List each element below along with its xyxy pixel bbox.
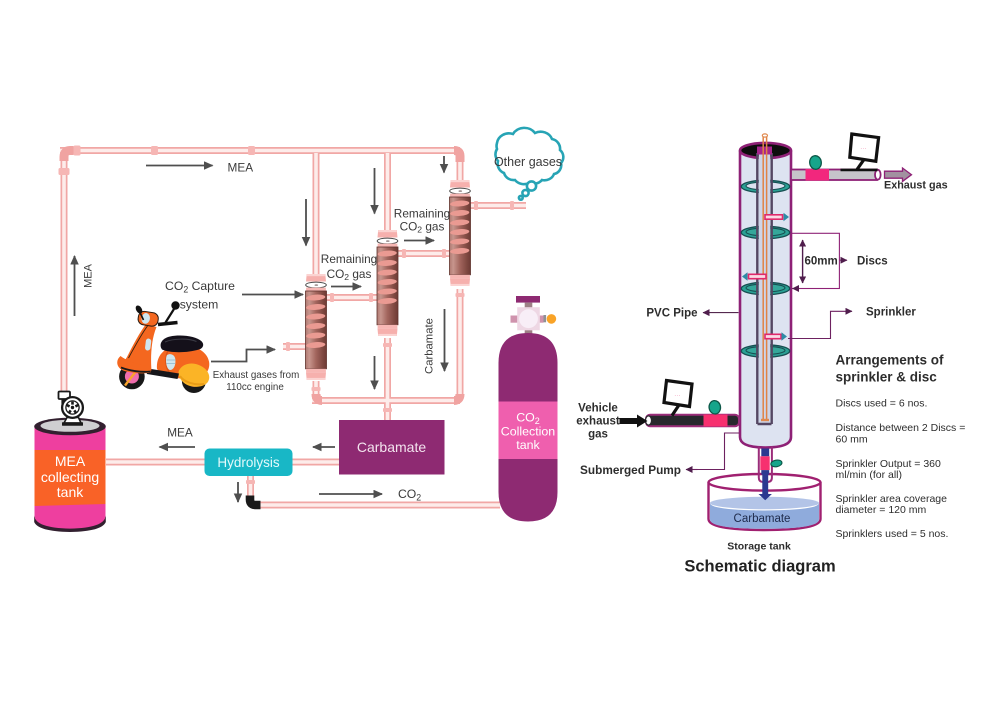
svg-text:Vehicle: Vehicle xyxy=(578,403,618,415)
svg-text:PVC Pipe: PVC Pipe xyxy=(646,308,697,320)
svg-text:MEA: MEA xyxy=(82,263,94,288)
svg-text:60mm: 60mm xyxy=(805,256,838,268)
svg-text:MEA: MEA xyxy=(55,453,86,469)
svg-text:Arrangements of: Arrangements of xyxy=(836,353,945,368)
svg-text:- - -: - - - xyxy=(861,147,867,151)
svg-text:Remaining: Remaining xyxy=(394,207,450,221)
svg-text:sprinkler & disc: sprinkler & disc xyxy=(836,370,938,385)
svg-text:CO2 gas: CO2 gas xyxy=(400,220,445,235)
svg-text:MEA: MEA xyxy=(167,426,193,440)
svg-text:tank: tank xyxy=(516,438,540,452)
svg-text:Collection: Collection xyxy=(501,425,556,439)
svg-text:gas: gas xyxy=(588,429,608,441)
svg-text:Storage tank: Storage tank xyxy=(727,541,791,553)
svg-text:Carbamate: Carbamate xyxy=(424,318,436,374)
svg-text:Sprinkler: Sprinkler xyxy=(866,306,916,318)
svg-text:tank: tank xyxy=(57,484,84,500)
svg-text:Carbamate: Carbamate xyxy=(734,513,791,525)
svg-text:Exhaust gas: Exhaust gas xyxy=(884,180,948,192)
svg-text:Submerged Pump: Submerged Pump xyxy=(580,463,681,477)
svg-text:60 mm: 60 mm xyxy=(836,434,868,446)
svg-text:CO2 gas: CO2 gas xyxy=(327,267,372,282)
svg-text:Carbamate: Carbamate xyxy=(357,439,426,455)
svg-text:ml/min (for all): ml/min (for all) xyxy=(836,469,903,481)
svg-text:diameter = 120 mm: diameter = 120 mm xyxy=(836,504,927,516)
svg-text:Exhaust gases from: Exhaust gases from xyxy=(213,370,300,381)
svg-text:Other gases: Other gases xyxy=(494,155,562,169)
svg-text:system: system xyxy=(180,298,219,312)
svg-text:- - -: - - - xyxy=(675,393,681,397)
svg-text:exhaust: exhaust xyxy=(576,416,620,428)
svg-text:Discs: Discs xyxy=(857,256,888,268)
svg-text:Discs used = 6 nos.: Discs used = 6 nos. xyxy=(836,398,928,410)
svg-text:CO2 Capture: CO2 Capture xyxy=(165,279,235,294)
svg-text:Remaining: Remaining xyxy=(321,252,377,266)
svg-text:Hydrolysis: Hydrolysis xyxy=(217,455,280,470)
svg-text:Distance between 2 Discs =: Distance between 2 Discs = xyxy=(836,422,966,434)
svg-text:collecting: collecting xyxy=(41,469,99,485)
svg-text:MEA: MEA xyxy=(228,161,254,175)
svg-text:110cc engine: 110cc engine xyxy=(226,382,284,393)
svg-text:Sprinklers used = 5 nos.: Sprinklers used = 5 nos. xyxy=(836,528,949,540)
svg-text:Schematic diagram: Schematic diagram xyxy=(684,558,835,576)
